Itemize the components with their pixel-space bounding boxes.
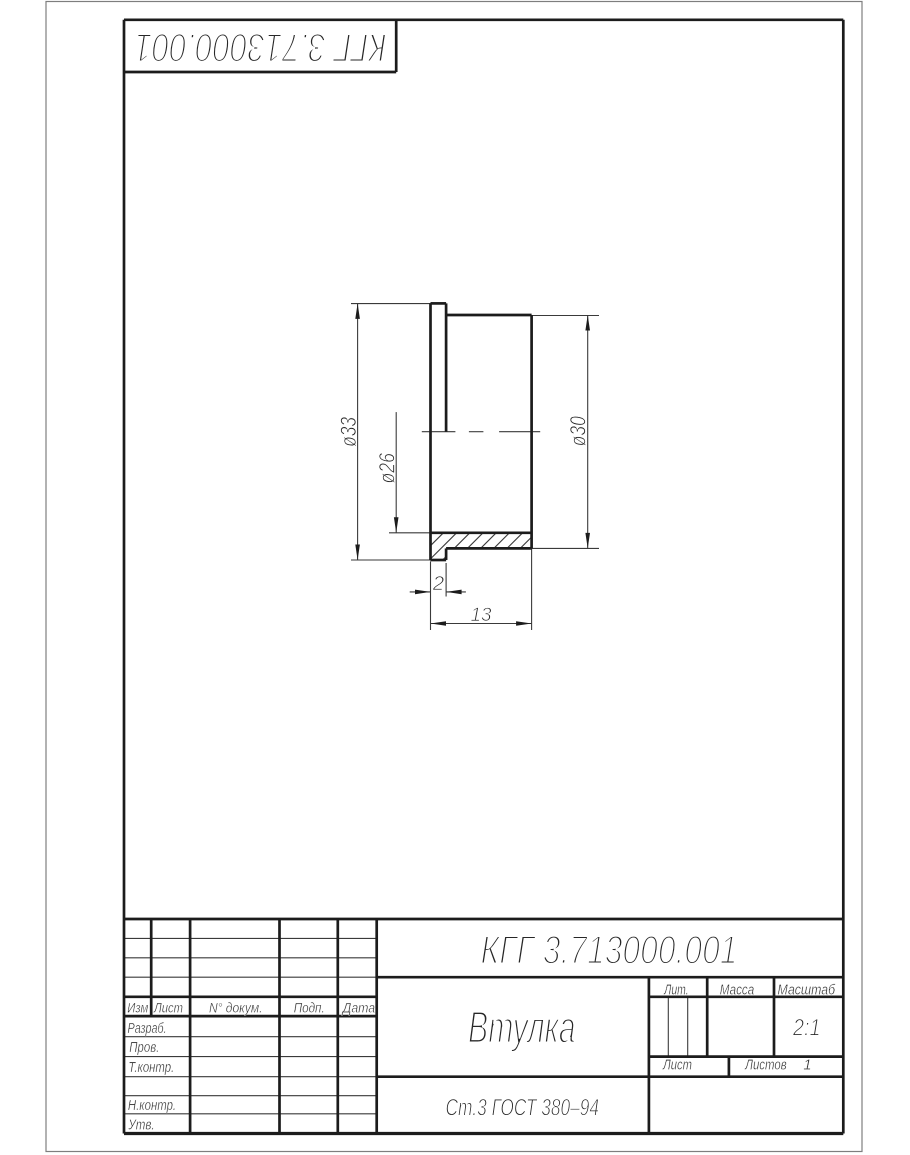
- svg-text:ø33: ø33: [336, 416, 361, 447]
- svg-text:Утв.: Утв.: [128, 1118, 155, 1134]
- svg-text:Т.контр.: Т.контр.: [128, 1060, 174, 1076]
- svg-text:Лист: Лист: [662, 1057, 692, 1074]
- svg-text:2:1: 2:1: [792, 1014, 820, 1041]
- svg-text:Подп.: Подп.: [294, 1000, 325, 1016]
- svg-text:N° докум.: N° докум.: [209, 1000, 263, 1016]
- svg-text:Листов: Листов: [744, 1057, 786, 1074]
- svg-text:Дата: Дата: [341, 1000, 375, 1016]
- svg-text:ø26: ø26: [374, 452, 399, 483]
- svg-text:Пров.: Пров.: [129, 1040, 159, 1056]
- svg-text:Ст.3 ГОСТ 380–94: Ст.3 ГОСТ 380–94: [446, 1095, 600, 1122]
- svg-text:Втулка: Втулка: [468, 1003, 576, 1052]
- svg-text:Н.контр.: Н.контр.: [128, 1098, 176, 1114]
- svg-text:2: 2: [432, 572, 445, 595]
- svg-text:13: 13: [471, 604, 492, 626]
- svg-text:Лит.: Лит.: [663, 981, 688, 998]
- svg-text:КГГ 3.713000.001: КГГ 3.713000.001: [481, 928, 738, 972]
- svg-text:Разраб.: Разраб.: [128, 1021, 167, 1037]
- svg-text:Масштаб: Масштаб: [778, 981, 836, 998]
- svg-text:1: 1: [803, 1057, 811, 1074]
- svg-text:КГГ 3.713000.001: КГГ 3.713000.001: [135, 25, 387, 69]
- svg-text:ø30: ø30: [566, 416, 591, 447]
- svg-text:Лист: Лист: [153, 1000, 183, 1016]
- svg-text:Изм: Изм: [127, 1000, 148, 1016]
- svg-text:Масса: Масса: [720, 981, 755, 998]
